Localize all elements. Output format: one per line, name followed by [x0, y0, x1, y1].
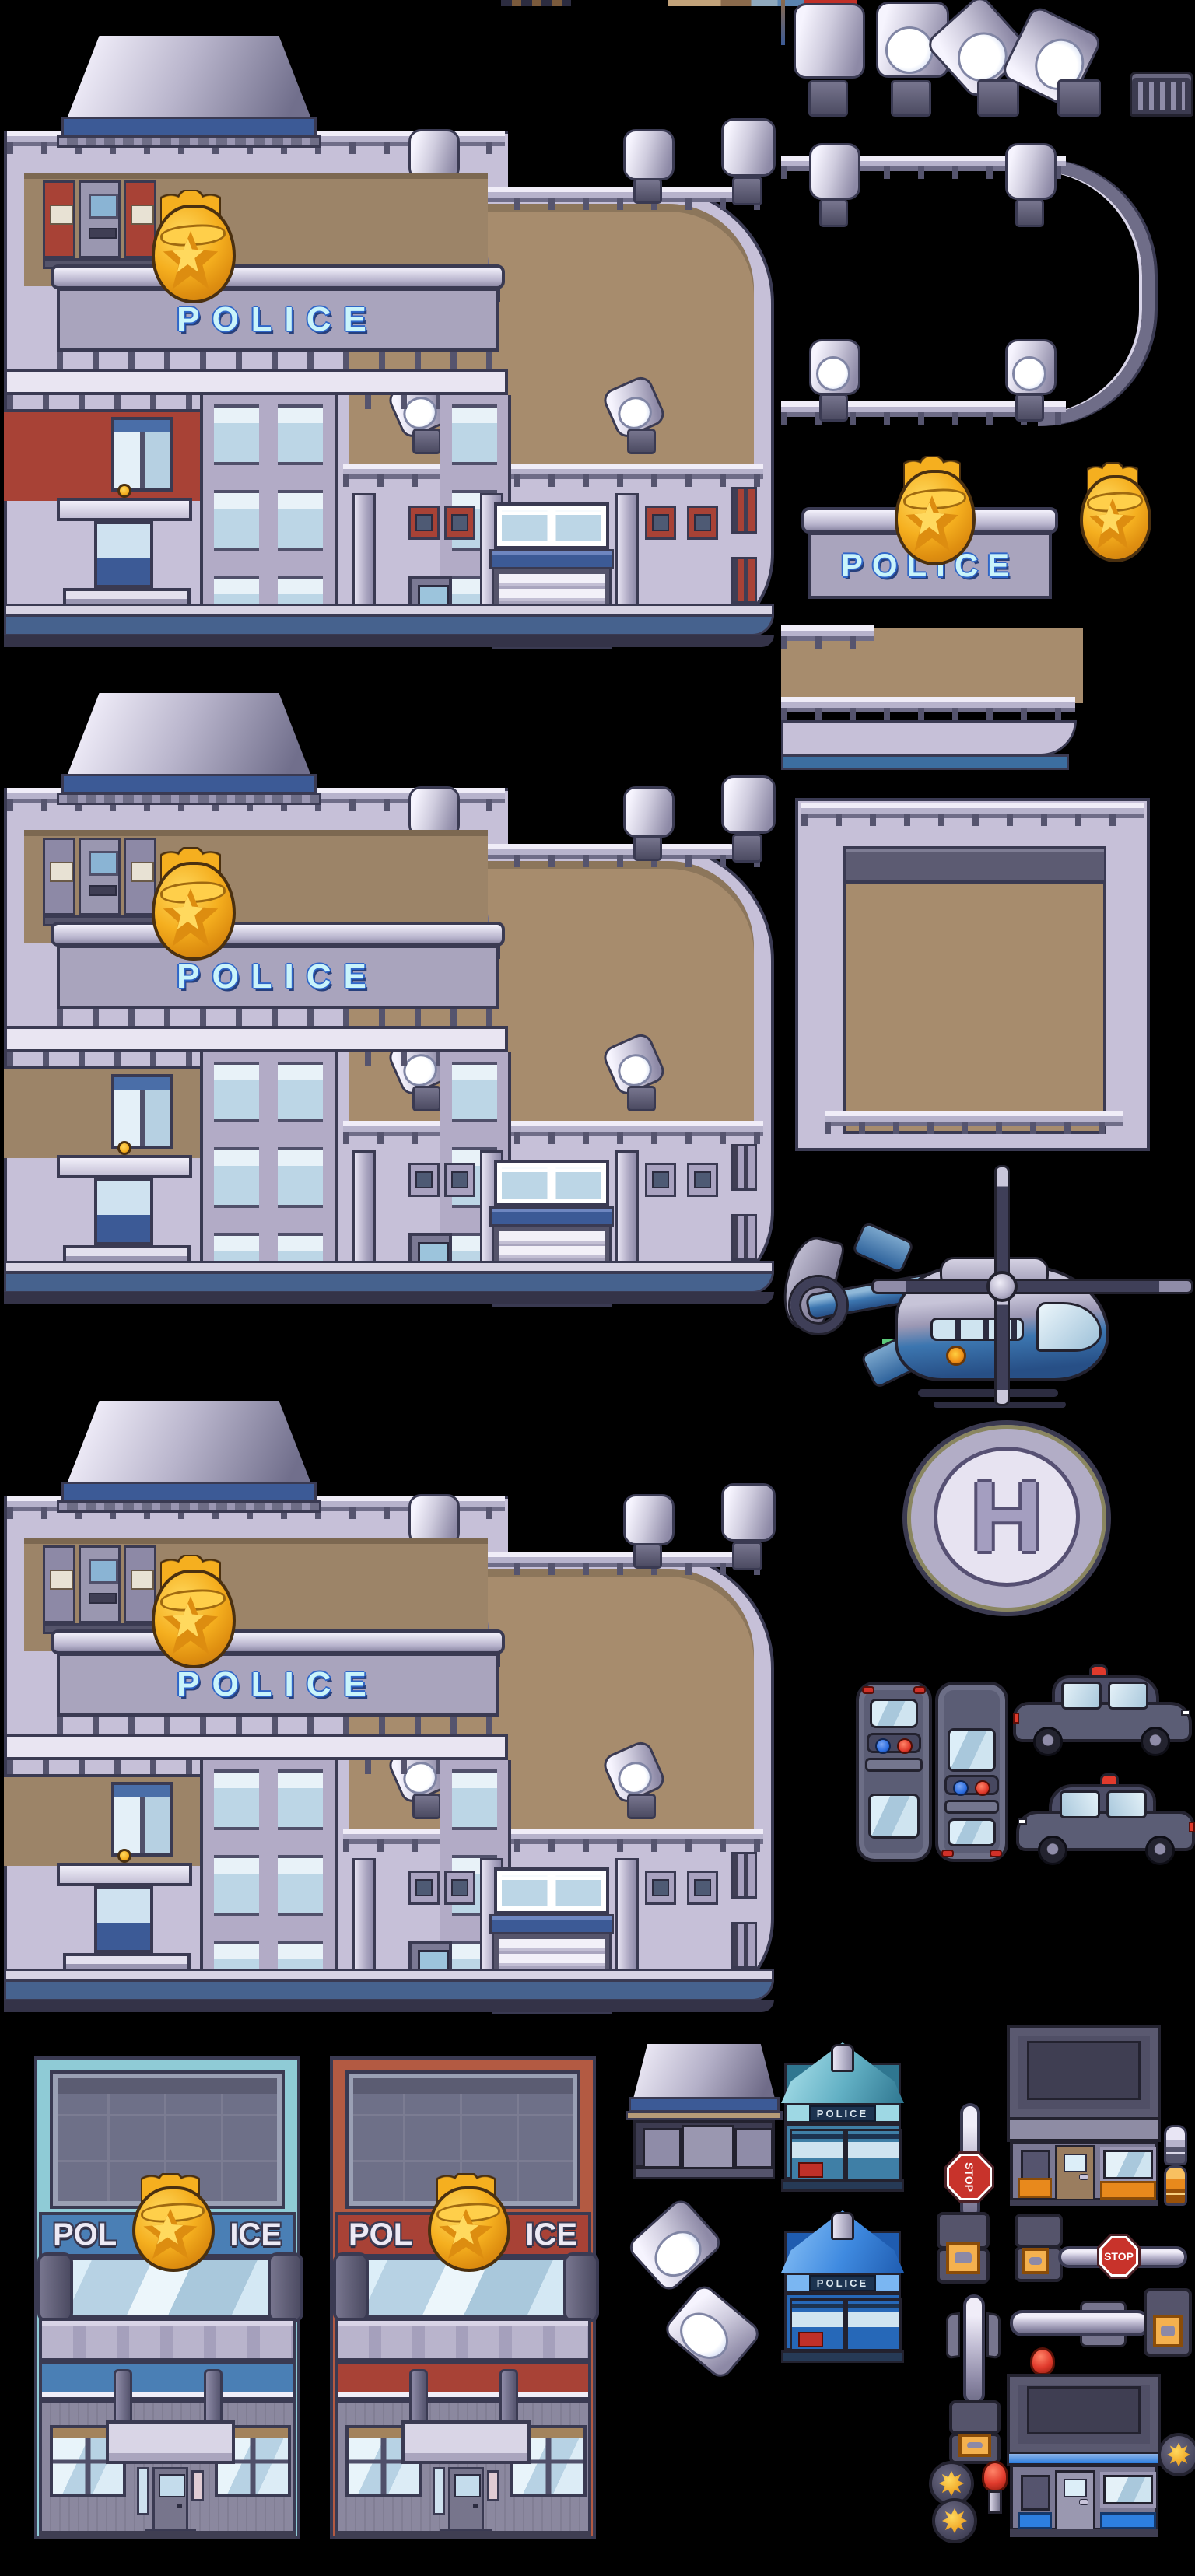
trim-band [39, 2318, 296, 2361]
windshield [868, 1794, 920, 1839]
police-badge-icon [149, 849, 233, 959]
wall-band [781, 720, 1077, 756]
base-strip [335, 2531, 591, 2539]
door-badge-icon [117, 1849, 131, 1863]
rotor-hub [986, 1271, 1018, 1302]
box-base [781, 2179, 904, 2192]
gate-base [937, 2248, 990, 2284]
windshield [948, 1728, 996, 1772]
pyramid-roof [68, 36, 310, 117]
gate-end-block [1144, 2288, 1192, 2357]
wheel-icon [1033, 1727, 1063, 1756]
vending-machine-icon [43, 1545, 75, 1623]
door-badge-icon [117, 1141, 131, 1155]
wall-vent [731, 1922, 757, 1969]
door-left [790, 2298, 846, 2351]
entrance-awning [57, 1155, 192, 1178]
police-badge-icon [149, 1556, 233, 1667]
entrance-canopy [106, 2420, 235, 2464]
arm-handle [986, 2312, 1001, 2360]
railing-lamp-icon [809, 143, 856, 227]
wheel-icon [1038, 1836, 1067, 1865]
pyramid-roof [68, 1401, 310, 1482]
gate-arm-vertical [944, 2294, 1007, 2466]
kiosk-ledge [626, 2111, 783, 2120]
floodlight-single-left-icon [655, 2206, 727, 2271]
police-car-side-facing-left [1013, 1773, 1195, 1870]
stabilizer-upper [851, 1221, 915, 1275]
police-sign-board: POLICE [51, 264, 505, 369]
sign-top-bar [51, 1629, 505, 1654]
helipad-inner: H [934, 1447, 1080, 1587]
corner-lamp-icon [721, 775, 771, 863]
small-window [645, 1871, 676, 1905]
police-badge-icon [129, 2175, 212, 2270]
wall-vent [731, 557, 757, 604]
roof-lamp-icon [831, 2212, 854, 2240]
side-window [1106, 1790, 1147, 1818]
entrance-canopy [401, 2420, 531, 2464]
railing-lamp-icon [1005, 143, 1052, 227]
gate-base-top [949, 2400, 1001, 2434]
atm-machine-icon [79, 1545, 121, 1623]
pilaster [352, 1150, 376, 1278]
police-medallion-icon [932, 2498, 977, 2543]
police-sign-text: POLICE [177, 957, 379, 996]
headlight [1181, 1710, 1190, 1716]
door-right [846, 2298, 902, 2351]
railing-fragment [781, 625, 874, 649]
base-slot [1022, 2248, 1049, 2274]
police-sign-text: POLICE [177, 300, 379, 339]
helipad-h-text: H [971, 1460, 1043, 1574]
notice-panel [798, 2162, 823, 2178]
floodlight-front-lit-icon [876, 2, 944, 117]
tail-rotor-icon [790, 1277, 846, 1333]
small-window [645, 1163, 676, 1197]
police-car-top-facing-up [935, 1682, 1008, 1862]
box-doors [784, 2123, 901, 2179]
guard-booth-blue-beacon [1007, 2374, 1161, 2539]
atm-machine-icon [79, 180, 121, 258]
sign-text-right: ICE [525, 2217, 577, 2252]
roof-panel [944, 1800, 999, 1814]
corner-lamp-icon [721, 1483, 771, 1570]
booth-window [1103, 2475, 1153, 2504]
left-window [111, 1782, 173, 1857]
left-window [111, 417, 173, 492]
base-slot [958, 2434, 991, 2457]
side-window [1108, 1682, 1148, 1710]
pilaster [615, 493, 639, 621]
sign-text-right: ICE [230, 2217, 282, 2252]
kiosk-base [633, 2167, 775, 2179]
hazard-stripe [1018, 2512, 1052, 2529]
pilaster [615, 1150, 639, 1278]
kiosk-roof-band [629, 2097, 780, 2112]
slim-window [433, 2467, 445, 2515]
base-slot [946, 2242, 980, 2274]
sign-face: POLICE [57, 288, 499, 352]
small-window [444, 506, 475, 540]
small-window [687, 1163, 718, 1197]
roof-ledge [57, 135, 321, 148]
parapet-lamp-icon [623, 129, 670, 204]
side-window [1061, 1682, 1102, 1710]
roof-band [61, 1482, 317, 1502]
kiosk-pyramid-roof [633, 2044, 775, 2098]
trim-band [4, 369, 508, 395]
small-window [408, 1163, 440, 1197]
marker-light [862, 1686, 874, 1694]
hazard-stripe [1100, 2512, 1156, 2529]
stop-text: STOP [963, 2162, 976, 2192]
small-window [408, 1871, 440, 1905]
entrance-door [94, 1886, 153, 1953]
vending-machine-icon [734, 2128, 773, 2168]
police-badge-icon [149, 191, 233, 302]
barrier-gate-horizontal-stop: STOP [1015, 2214, 1193, 2284]
sign-text-left: POL [349, 2217, 412, 2252]
parapet-lamp-icon [623, 786, 670, 861]
side-window [1060, 1790, 1100, 1818]
accent-band [335, 2361, 591, 2400]
box-sign-band: POLICE [784, 2273, 901, 2293]
landing-skid [918, 1389, 1058, 1397]
roof-ledge [57, 793, 321, 805]
box-base [781, 2350, 904, 2363]
hazard-stripe [1018, 2178, 1052, 2198]
police-storefront-blue: POL ICE [34, 2056, 300, 2539]
entrance-door [448, 2467, 484, 2531]
bollard-steel-icon [1164, 2125, 1187, 2165]
base-stripe [4, 1979, 774, 2001]
roof-railing-bottom [343, 1121, 763, 1158]
stop-sign-icon: STOP [1097, 2234, 1141, 2279]
entrance-door [94, 521, 153, 588]
pillar [37, 2252, 73, 2322]
police-station-large-red: POLICE [4, 31, 774, 647]
roof-floodlight-icon [617, 1745, 664, 1819]
roof-band [61, 117, 317, 137]
box-sign-band: POLICE [784, 2103, 901, 2123]
tail-light [990, 1850, 1002, 1857]
base-strip [39, 2531, 296, 2539]
door-right [846, 2129, 902, 2182]
blue-band [489, 1914, 614, 1934]
garage-window [494, 1160, 609, 1206]
bollard-orange-icon [1164, 2165, 1187, 2206]
trim-band [4, 1026, 508, 1052]
roof-railing-bottom [343, 464, 763, 501]
roof-railing-bottom [825, 1111, 1123, 1148]
booth-roof-panel [1027, 2386, 1141, 2434]
roof-band [61, 774, 317, 794]
accent-band [39, 2361, 296, 2400]
wall-vent [731, 1852, 757, 1899]
booth-body [1010, 2464, 1158, 2531]
atm-machine-icon [79, 838, 121, 915]
sign-face: POLICE [57, 945, 499, 1009]
floodlight-front-icon [794, 3, 860, 117]
tower-roof-cap [68, 1401, 310, 1517]
barrier-gate-vertical-stop: STOP [930, 2103, 1008, 2280]
tail-light [1013, 1713, 1019, 1724]
roof-ledge [57, 1500, 321, 1513]
police-sign-board: POLICE [51, 1629, 505, 1734]
police-medallion-icon [1158, 2433, 1195, 2476]
pilaster [352, 493, 376, 621]
corner-lamp-icon [721, 118, 771, 205]
sign-top-bar [51, 922, 505, 947]
small-window [645, 506, 676, 540]
wall-poster [487, 2470, 499, 2501]
wall-vent [731, 1214, 757, 1261]
stop-sign-icon: STOP [944, 2151, 994, 2203]
small-window [408, 506, 440, 540]
wall-vent [731, 487, 757, 534]
gate-base [1015, 2246, 1063, 2282]
wall-vent [731, 1144, 757, 1191]
wheel-icon [1145, 1836, 1175, 1865]
pillar [268, 2252, 303, 2322]
base-stripe [4, 1272, 774, 1293]
vending-machine-icon [43, 838, 75, 915]
blue-band [489, 1206, 614, 1227]
small-window [444, 1871, 475, 1905]
roof-edge-tile [781, 628, 1086, 772]
booth-door [1055, 2145, 1095, 2201]
sign-face: POLICE [57, 1653, 499, 1717]
box-doors [784, 2293, 901, 2350]
booth-base [1010, 2529, 1158, 2537]
sign-posts [57, 1009, 499, 1026]
rotor-blade-horizontal [871, 1279, 1193, 1294]
railing-lamp-lit-icon [1005, 339, 1052, 422]
booth-window-dark [1021, 2475, 1050, 2511]
helipad-h-circle: H [902, 1420, 1111, 1616]
light-bar-icon [867, 1733, 921, 1753]
door-badge-icon [117, 484, 131, 498]
base-shadow [4, 1292, 774, 1304]
booth-door [1055, 2470, 1095, 2531]
sheet-fragment [501, 0, 571, 6]
wall-poster [191, 2470, 204, 2501]
gate-arm [963, 2294, 985, 2405]
vending-machine-icon [643, 2128, 682, 2168]
tail-light [941, 1850, 954, 1857]
roof-railing-bottom [343, 1829, 763, 1866]
box-sign-text: POLICE [809, 2105, 876, 2122]
booth-eave [1007, 2117, 1161, 2142]
floodlight-steep-lit-icon [1041, 0, 1116, 117]
railing-lamp-lit-icon [809, 339, 856, 422]
gold-emblem-icon [946, 1346, 966, 1366]
curved-roof-railing [781, 149, 1165, 450]
atm-machine-icon [682, 2125, 734, 2170]
stop-text: STOP [1104, 2250, 1134, 2263]
arm-handle [946, 2312, 960, 2360]
police-car-top-facing-down [856, 1682, 932, 1862]
floodlight-single-right-icon [655, 2293, 730, 2358]
vending-machines [43, 1545, 159, 1637]
police-sign-text: POLICE [177, 1665, 379, 1704]
base-shadow [4, 2000, 774, 2012]
sheet-fragment [781, 0, 785, 45]
beacon-post [988, 2490, 1002, 2514]
pyramid-roof [68, 693, 310, 774]
guard-booth-orange [1007, 2025, 1161, 2206]
tower-roof-cap [68, 693, 310, 810]
square-rooftop-tile [795, 798, 1150, 1151]
roof-lamp-icon [831, 2044, 854, 2072]
sign-posts [57, 1717, 499, 1734]
police-call-box-teal: POLICE [781, 2042, 904, 2192]
tail-light [1189, 1822, 1195, 1832]
light-bar-icon [944, 1775, 999, 1795]
roof-shutter-band [843, 846, 1106, 884]
sign-top-bar [51, 264, 505, 289]
box-sign-text: POLICE [809, 2275, 876, 2291]
booth-body [1010, 2140, 1158, 2201]
pilaster [352, 1858, 376, 1986]
parapet-lamp-icon [623, 1494, 670, 1569]
police-badge-icon [892, 457, 972, 563]
sign-text-left: POL [53, 2217, 117, 2252]
gate-base-top [1015, 2214, 1063, 2248]
pilaster [615, 1858, 639, 1986]
left-window [111, 1074, 173, 1149]
marker-light [913, 1686, 926, 1694]
roof-floor [843, 880, 1106, 1134]
small-window [444, 1163, 475, 1197]
booth-window [1103, 2150, 1153, 2179]
vending-machines [43, 180, 159, 272]
police-car-side-facing-right [1011, 1664, 1195, 1761]
roof-kiosk-vending [633, 2044, 775, 2181]
base-slot [1153, 2315, 1183, 2347]
base-shadow [4, 635, 774, 647]
warning-beacon-post [976, 2461, 1013, 2517]
small-window [687, 1871, 718, 1905]
trim-band [4, 1734, 508, 1760]
entrance-door [94, 1178, 153, 1245]
police-station-large-gray-b: POLICE [4, 1396, 774, 2012]
police-storefront-red: POL ICE [330, 2056, 596, 2539]
spritesheet: POLICE [0, 0, 1195, 2576]
wheel-icon [1141, 1727, 1170, 1756]
garage-window [494, 1867, 609, 1914]
sign-posts [57, 352, 499, 369]
roof-floodlight-icon [617, 1037, 664, 1111]
roof-floodlight-icon [617, 380, 664, 454]
blue-stripe [781, 754, 1069, 770]
rear-window [870, 1699, 918, 1728]
police-sign-board: POLICE [51, 922, 505, 1026]
police-badge-icon [425, 2175, 507, 2270]
police-station-large-gray-a: POLICE [4, 688, 774, 1304]
rear-window [948, 1818, 996, 1846]
police-badge-icon [1077, 464, 1148, 560]
roof-panel [865, 1758, 923, 1772]
police-call-box-blue: POLICE [781, 2210, 904, 2363]
gate-base [949, 2433, 1001, 2464]
hazard-stripe [1100, 2181, 1156, 2200]
pillar [563, 2252, 599, 2322]
booth-base [1010, 2200, 1158, 2206]
blue-band [489, 549, 614, 569]
entrance-awning [57, 498, 192, 521]
cabin-windows [930, 1318, 1024, 1341]
entrance-awning [57, 1863, 192, 1886]
entrance-door [152, 2467, 188, 2531]
gate-arm [1010, 2310, 1150, 2336]
kiosk-body [633, 2120, 775, 2168]
pillar [333, 2252, 369, 2322]
roof-railing-top [801, 803, 1144, 840]
notice-panel [798, 2332, 823, 2347]
tower-roof-cap [68, 36, 310, 152]
trim-band [335, 2318, 591, 2361]
door-left [790, 2129, 846, 2182]
vending-machines [43, 838, 159, 929]
slim-window [137, 2467, 149, 2515]
garage-window [494, 502, 609, 549]
headlight [1018, 1818, 1027, 1825]
vending-machine-icon [43, 180, 75, 258]
booth-roof-panel [1027, 2041, 1141, 2100]
small-window [687, 506, 718, 540]
base-stripe [4, 614, 774, 636]
roof-vent-grate-icon [1130, 72, 1193, 117]
police-helicopter [778, 1165, 1193, 1414]
